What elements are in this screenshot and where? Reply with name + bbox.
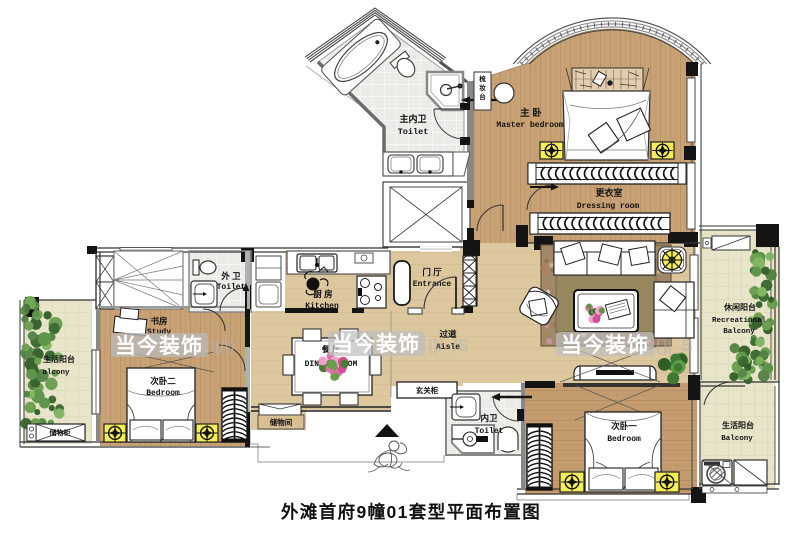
svg-text:次卧二: 次卧二 xyxy=(150,376,176,386)
svg-text:当今装饰: 当今装饰 xyxy=(561,333,649,357)
svg-text:Master bedroom: Master bedroom xyxy=(496,121,563,130)
svg-text:门 厅: 门 厅 xyxy=(422,267,442,277)
svg-text:\|/\⟩: \|/\⟩ xyxy=(210,337,236,356)
svg-text:Recreational: Recreational xyxy=(712,317,767,325)
svg-text:主内卫: 主内卫 xyxy=(399,113,426,124)
svg-text:Toilet: Toilet xyxy=(398,127,429,137)
svg-text:alcony: alcony xyxy=(42,369,70,377)
svg-text:Bedroom: Bedroom xyxy=(607,435,641,444)
svg-text:梳: 梳 xyxy=(479,74,486,83)
svg-text:内卫: 内卫 xyxy=(480,413,498,423)
svg-text:Bedroom: Bedroom xyxy=(146,389,180,398)
svg-text:台: 台 xyxy=(479,92,486,101)
svg-text:妆: 妆 xyxy=(479,83,486,92)
svg-text:当今装饰: 当今装饰 xyxy=(332,332,420,356)
svg-text:主 卧: 主 卧 xyxy=(520,107,542,119)
svg-text:更衣室: 更衣室 xyxy=(595,187,622,198)
svg-text:|)/_/S: |)/_/S xyxy=(428,336,469,355)
svg-text:Dressing room: Dressing room xyxy=(577,202,640,211)
svg-text:储物柜: 储物柜 xyxy=(49,428,71,437)
svg-text:厨 房: 厨 房 xyxy=(313,289,332,299)
svg-text:Balcony: Balcony xyxy=(721,435,753,443)
svg-text:生活阳台: 生活阳台 xyxy=(722,420,754,430)
svg-text:生活阳台: 生活阳台 xyxy=(43,354,75,364)
svg-text:书房: 书房 xyxy=(150,316,167,326)
svg-text:[]|_S: []|_S xyxy=(656,336,693,355)
svg-text:Toilet: Toilet xyxy=(217,283,246,292)
svg-text:外滩首府9幢01套型平面布置图: 外滩首府9幢01套型平面布置图 xyxy=(281,502,541,522)
svg-text:Kitchen: Kitchen xyxy=(305,302,339,311)
svg-text:玄关柜: 玄关柜 xyxy=(416,385,439,395)
svg-text:Toilet: Toilet xyxy=(475,427,504,436)
svg-text:休闲阳台: 休闲阳台 xyxy=(723,302,756,312)
svg-text:Balcony: Balcony xyxy=(723,328,755,336)
svg-text:次卧一: 次卧一 xyxy=(611,421,637,431)
svg-text:当今装饰: 当今装饰 xyxy=(115,334,203,358)
svg-text:储物间: 储物间 xyxy=(270,417,293,427)
svg-text:外 卫: 外 卫 xyxy=(220,271,241,281)
